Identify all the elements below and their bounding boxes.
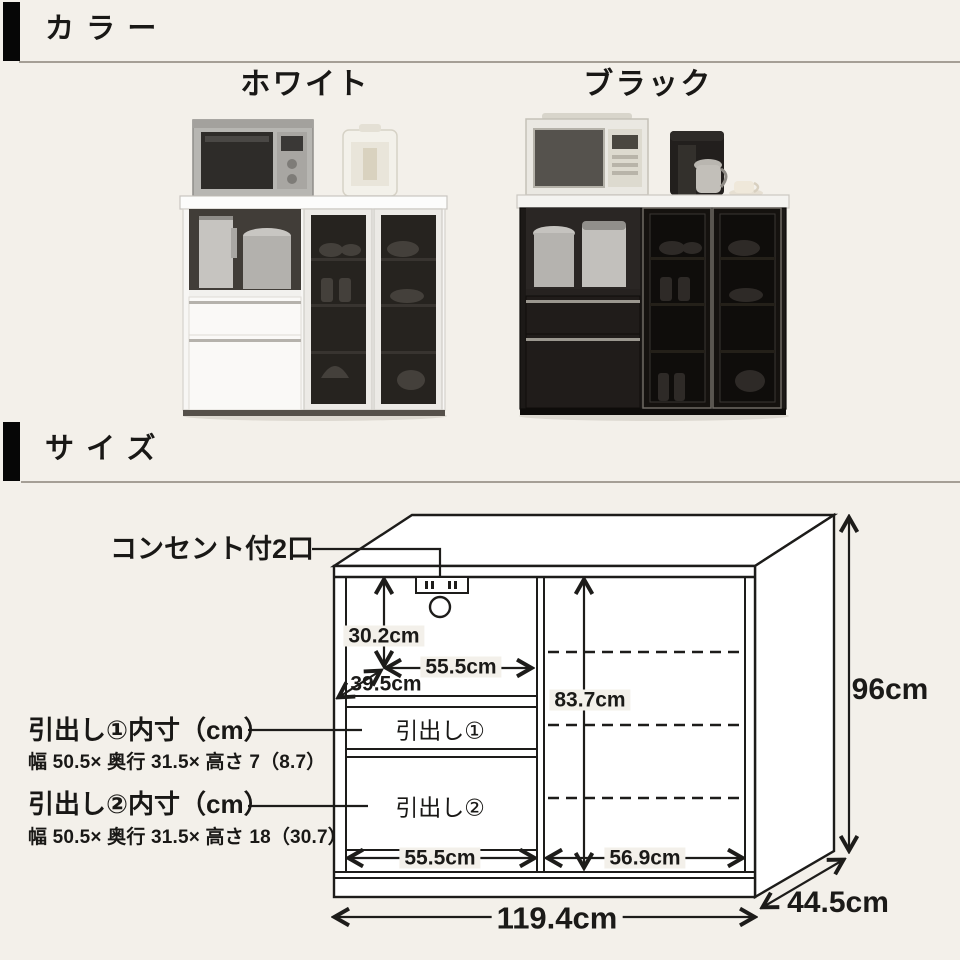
outlet-box bbox=[416, 577, 468, 593]
outlet-callout-label: コンセント付2口 bbox=[110, 536, 314, 563]
dim-total-depth: 44.5cm bbox=[787, 888, 889, 918]
drawer1-inner-label: 引出し① bbox=[391, 720, 489, 743]
drawer1-spec: 幅 50.5× 奥行 31.5× 高さ 7（8.7） bbox=[28, 753, 325, 772]
drawer2-title: 引出し②内寸（cm） bbox=[28, 791, 270, 817]
cabinet-top-face bbox=[334, 515, 834, 566]
dim-inner-depth: 39.5cm bbox=[350, 674, 421, 695]
dim-bottom-width-left: 55.5cm bbox=[399, 848, 480, 869]
dim-inner-height-left: 30.2cm bbox=[343, 626, 424, 647]
drawer2-spec: 幅 50.5× 奥行 31.5× 高さ 18（30.7） bbox=[28, 828, 347, 847]
product-info-page: カラー ホワイト ブラック bbox=[0, 0, 960, 960]
dim-total-width: 119.4cm bbox=[492, 903, 623, 934]
dim-bottom-width-right: 56.9cm bbox=[604, 848, 685, 869]
drawer1-title: 引出し①内寸（cm） bbox=[28, 717, 270, 743]
dim-inner-height-right: 83.7cm bbox=[549, 690, 630, 711]
cabinet-side-face bbox=[755, 515, 834, 897]
dim-total-height: 96cm bbox=[852, 675, 929, 705]
drawer2-inner-label: 引出し② bbox=[391, 797, 489, 820]
dim-inner-width-left: 55.5cm bbox=[420, 657, 501, 678]
